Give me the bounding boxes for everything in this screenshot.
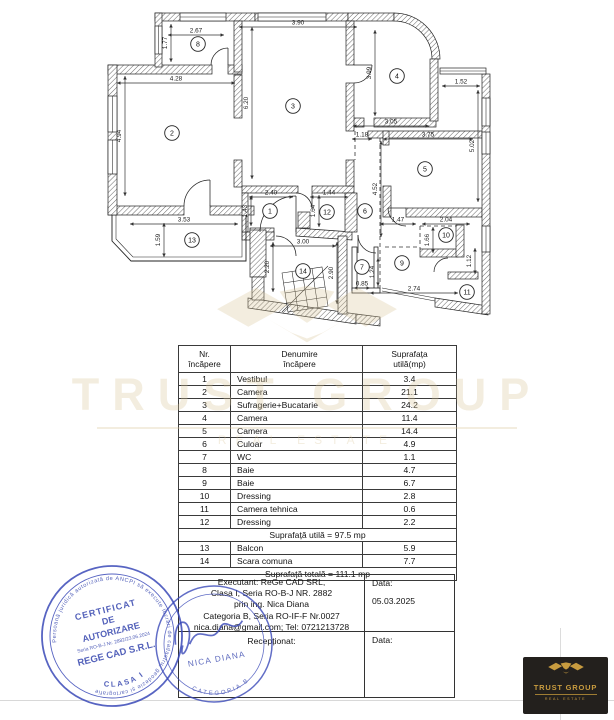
table-cell: 11.4 xyxy=(363,412,457,425)
room-number-marker: 8 xyxy=(191,37,206,52)
header-name: Denumireîncăpere xyxy=(231,346,363,373)
room-number-marker: 2 xyxy=(165,126,180,141)
svg-text:1.43: 1.43 xyxy=(242,204,249,217)
svg-text:Persoană juridică autorizată d: Persoană juridică autorizată de ANCPI să… xyxy=(40,563,185,708)
table-cell: 4 xyxy=(179,412,231,425)
svg-text:13: 13 xyxy=(188,237,196,244)
header-nr: Nr.încăpere xyxy=(179,346,231,373)
table-cell: 3.4 xyxy=(363,373,457,386)
dimension-label: 1.47 xyxy=(380,217,416,225)
table-cell: 5 xyxy=(179,425,231,438)
table-cell: Baie xyxy=(231,477,363,490)
table-cell: 6.7 xyxy=(363,477,457,490)
plan-doors xyxy=(184,48,448,272)
room-number-marker: 6 xyxy=(358,204,373,219)
table-cell: 2.8 xyxy=(363,490,457,503)
executant-line: Clasa I, Seria RO-B-J NR. 2882 xyxy=(179,588,364,599)
svg-text:7: 7 xyxy=(360,264,364,271)
receptionat-cell: Recepționat: xyxy=(179,632,365,697)
room-number-marker: 10 xyxy=(439,228,454,243)
svg-text:4.28: 4.28 xyxy=(170,76,183,83)
svg-text:1.12: 1.12 xyxy=(466,254,473,267)
svg-text:3.00: 3.00 xyxy=(297,239,310,246)
svg-text:3.99: 3.99 xyxy=(366,66,373,79)
stamp-ring-text: Persoană juridică autorizată de ANCPI să… xyxy=(40,563,185,708)
dimension-label: 3.99 xyxy=(366,30,375,116)
svg-text:5.02: 5.02 xyxy=(469,139,476,152)
scan-page-edge-horizontal xyxy=(0,700,614,701)
room-areas-table: Nr.încăpere Denumireîncăpere Suprafațaut… xyxy=(178,345,457,581)
table-cell: Dressing xyxy=(231,490,363,503)
date-value: 05.03.2025 xyxy=(372,596,454,607)
receptionat-date-cell: Data: xyxy=(365,632,454,697)
svg-text:4.52: 4.52 xyxy=(372,182,379,195)
stamp-line: REGE CAD S.R.L. xyxy=(76,639,156,669)
svg-text:10: 10 xyxy=(442,232,450,239)
dimension-label: 2.04 xyxy=(422,217,470,225)
table-header-row: Nr.încăpere Denumireîncăpere Suprafațaut… xyxy=(179,346,457,373)
table-cell: Sufragerie+Bucatarie xyxy=(231,399,363,412)
svg-text:2.20: 2.20 xyxy=(264,260,271,273)
executant-info: Executant: ReGe CAD SRL, Clasa I, Seria … xyxy=(179,575,365,632)
table-cell: Dressing xyxy=(231,516,363,529)
stamp-line: CLASA I xyxy=(101,668,147,692)
dimension-label: 0.85 xyxy=(354,281,370,289)
table-cell: 1 xyxy=(179,373,231,386)
room-number-marker: 9 xyxy=(395,256,410,271)
dimension-label: 1.77 xyxy=(162,24,171,62)
dimension-label: 2.90 xyxy=(328,242,337,304)
dimension-label: 1.59 xyxy=(155,223,164,257)
table-cell: Camera xyxy=(231,412,363,425)
table-cell: 0.6 xyxy=(363,503,457,516)
table-cell: 2 xyxy=(179,386,231,399)
svg-text:0.85: 0.85 xyxy=(356,281,369,288)
svg-text:1.18: 1.18 xyxy=(356,132,369,139)
table-cell: 14 xyxy=(179,555,231,568)
table-summary-row: Suprafață utilă = 97.5 mp xyxy=(179,529,457,542)
table-row: 7WC1.1 xyxy=(179,451,457,464)
svg-text:8: 8 xyxy=(196,41,200,48)
table-row: 1Vestibul3.4 xyxy=(179,373,457,386)
table-cell: 11 xyxy=(179,503,231,516)
table-row: 6Culoar4.9 xyxy=(179,438,457,451)
dimension-label: 2.74 xyxy=(370,286,458,294)
svg-text:1.64: 1.64 xyxy=(310,204,317,217)
table-cell: Balcon xyxy=(231,542,363,555)
dimension-label: 6.20 xyxy=(243,27,252,179)
table-row: 3Sufragerie+Bucatarie24.2 xyxy=(179,399,457,412)
table-row: 4Camera11.4 xyxy=(179,412,457,425)
table-cell: 4.9 xyxy=(363,438,457,451)
executant-line: Categoria B, Seria RO-IF-F Nr.0027 xyxy=(179,611,364,622)
logo-subtitle: REAL ESTATE xyxy=(535,694,597,701)
dimension-label: 1.52 xyxy=(442,79,480,87)
table-cell: 10 xyxy=(179,490,231,503)
table-cell: 7.7 xyxy=(363,555,457,568)
svg-text:1.44: 1.44 xyxy=(323,190,336,197)
room-number-marker: 13 xyxy=(185,233,200,248)
dimension-label: 1.64 xyxy=(310,195,319,227)
svg-text:14: 14 xyxy=(299,268,307,275)
svg-text:1.59: 1.59 xyxy=(155,233,162,246)
executant-box: Executant: ReGe CAD SRL, Clasa I, Seria … xyxy=(178,574,455,698)
table-row: 2Camera21.1 xyxy=(179,386,457,399)
dimension-label: 1.12 xyxy=(466,248,475,274)
table-cell: 3 xyxy=(179,399,231,412)
table-cell: WC xyxy=(231,451,363,464)
svg-text:3: 3 xyxy=(291,103,295,110)
dimension-label: 4.28 xyxy=(117,76,235,84)
table-cell: 7 xyxy=(179,451,231,464)
table-cell: Camera xyxy=(231,386,363,399)
svg-text:2.04: 2.04 xyxy=(440,217,453,224)
dimension-label: 3.00 xyxy=(270,239,336,247)
room-number-marker: 12 xyxy=(320,205,335,220)
date-label: Data: xyxy=(372,578,454,589)
room-number-marker: 14 xyxy=(296,264,311,279)
svg-text:1.24: 1.24 xyxy=(369,265,376,278)
svg-text:2: 2 xyxy=(170,130,174,137)
svg-text:3.90: 3.90 xyxy=(292,20,305,27)
table-row: 9Baie6.7 xyxy=(179,477,457,490)
round-stamp-rege-cad: Persoană juridică autorizată de ANCPI să… xyxy=(34,558,190,714)
svg-text:12: 12 xyxy=(323,209,331,216)
room-number-markers: 1234567891011121314 xyxy=(165,37,475,300)
table-cell: 14.4 xyxy=(363,425,457,438)
svg-text:9: 9 xyxy=(400,260,404,267)
table-cell: 4.7 xyxy=(363,464,457,477)
svg-text:4.94: 4.94 xyxy=(116,129,123,142)
svg-text:11: 11 xyxy=(463,289,470,296)
summary-cell: Suprafață utilă = 97.5 mp xyxy=(179,529,457,542)
table-row: 11Camera tehnica0.6 xyxy=(179,503,457,516)
room-number-marker: 11 xyxy=(460,285,475,300)
table-cell: Camera tehnica xyxy=(231,503,363,516)
svg-text:3.53: 3.53 xyxy=(178,217,191,224)
svg-text:1.77: 1.77 xyxy=(162,36,169,49)
dimension-label: 2.67 xyxy=(168,28,224,36)
table-cell: 24.2 xyxy=(363,399,457,412)
stamp-line: CERTIFICAT xyxy=(74,597,137,622)
svg-text:5: 5 xyxy=(423,166,427,173)
stamp-line: AUTORIZARE xyxy=(81,620,141,644)
table-cell: 5.9 xyxy=(363,542,457,555)
table-cell: 2.2 xyxy=(363,516,457,529)
table-row: 14Scara comuna7.7 xyxy=(179,555,457,568)
table-cell: Culoar xyxy=(231,438,363,451)
svg-text:1: 1 xyxy=(268,208,272,215)
svg-text:1.47: 1.47 xyxy=(392,217,405,224)
executant-line: Executant: ReGe CAD SRL, xyxy=(179,577,364,588)
areas-table-body: 1Vestibul3.42Camera21.13Sufragerie+Bucat… xyxy=(179,373,457,581)
room-number-marker: 7 xyxy=(355,260,370,275)
svg-text:1.66: 1.66 xyxy=(424,233,431,246)
svg-text:6: 6 xyxy=(363,208,367,215)
svg-text:CLASA I: CLASA I xyxy=(101,668,147,692)
table-cell: Baie xyxy=(231,464,363,477)
room-number-marker: 3 xyxy=(286,99,301,114)
svg-text:6.20: 6.20 xyxy=(243,96,250,109)
stamp-line: Seria RO-B-J Nr. 2882/23.06.2024 xyxy=(77,631,151,655)
table-row: 10Dressing2.8 xyxy=(179,490,457,503)
executant-line: prin ing. Nica Diana xyxy=(179,599,364,610)
stamp-line: DE xyxy=(101,614,116,627)
room-number-marker: 1 xyxy=(263,204,278,219)
svg-text:3.05: 3.05 xyxy=(385,119,398,126)
room-number-marker: 5 xyxy=(418,162,433,177)
table-cell: 9 xyxy=(179,477,231,490)
table-row: 5Camera14.4 xyxy=(179,425,457,438)
header-area: Suprafațautilă(mp) xyxy=(363,346,457,373)
svg-text:2.40: 2.40 xyxy=(265,190,278,197)
date-label: Data: xyxy=(372,635,454,646)
handshake-icon xyxy=(547,660,585,677)
table-row: 12Dressing2.2 xyxy=(179,516,457,529)
table-cell: 6 xyxy=(179,438,231,451)
table-cell: 8 xyxy=(179,464,231,477)
scanned-floor-plan-document: 2.671.773.904.284.946.203.993.051.521.18… xyxy=(0,0,614,720)
logo-title: TRUST GROUP xyxy=(523,683,608,692)
svg-text:1.52: 1.52 xyxy=(455,79,468,86)
room-number-marker: 4 xyxy=(390,69,405,84)
table-cell: 12 xyxy=(179,516,231,529)
svg-text:4: 4 xyxy=(395,73,399,80)
trust-group-logo: TRUST GROUP REAL ESTATE xyxy=(523,657,608,714)
table-cell: Camera xyxy=(231,425,363,438)
table-cell: 1.1 xyxy=(363,451,457,464)
svg-text:3.75: 3.75 xyxy=(422,132,435,139)
dimension-label: 5.02 xyxy=(469,90,478,202)
receptionat-label: Recepționat: xyxy=(179,636,364,646)
floor-plan-drawing: 2.671.773.904.284.946.203.993.051.521.18… xyxy=(0,0,614,335)
table-cell: Vestibul xyxy=(231,373,363,386)
table-cell: Scara comuna xyxy=(231,555,363,568)
table-cell: 21.1 xyxy=(363,386,457,399)
svg-text:2.90: 2.90 xyxy=(328,266,335,279)
dimension-label: 3.53 xyxy=(130,217,238,225)
table-cell: 13 xyxy=(179,542,231,555)
executant-date-cell: Data: 05.03.2025 xyxy=(365,575,454,632)
table-row: 13Balcon5.9 xyxy=(179,542,457,555)
table-row: 8Baie4.7 xyxy=(179,464,457,477)
svg-text:2.67: 2.67 xyxy=(190,28,203,35)
svg-text:2.74: 2.74 xyxy=(408,286,421,293)
